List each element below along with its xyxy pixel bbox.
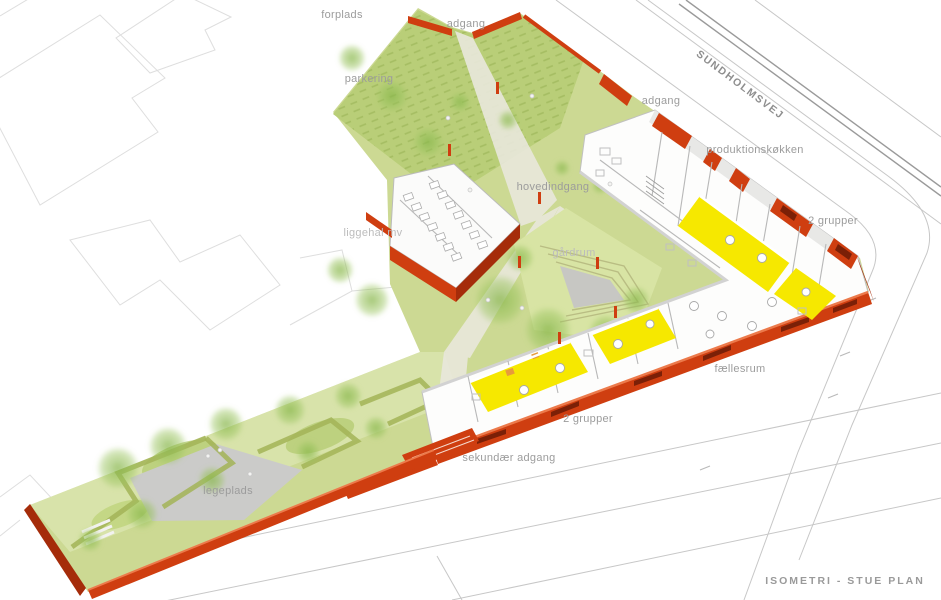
label-2-grupper-ne: 2 grupper (808, 215, 858, 227)
label-adgang-nw: adgang (447, 18, 486, 30)
drawing-caption: ISOMETRI - STUE PLAN (765, 575, 925, 587)
label-liggehal: liggehal mv (344, 227, 403, 239)
label-gaardrum: gårdrum (552, 247, 595, 259)
label-legeplads: legeplads (203, 485, 253, 497)
label-produktionskoekken: produktionskøkken (706, 144, 803, 156)
label-hovedindgang: hovedindgang (517, 181, 590, 193)
site-plan: forplads adgang parkering SUNDHOLMSVEJ a… (0, 0, 941, 600)
label-adgang-ne: adgang (642, 95, 681, 107)
label-sekundaer-adgang: sekundær adgang (462, 452, 555, 464)
label-forplads: forplads (321, 9, 363, 21)
label-parkering: parkering (345, 73, 394, 85)
label-faellesrum: fællesrum (715, 363, 766, 375)
label-2-grupper-s: 2 grupper (563, 413, 613, 425)
isometric-drawing (0, 0, 941, 600)
